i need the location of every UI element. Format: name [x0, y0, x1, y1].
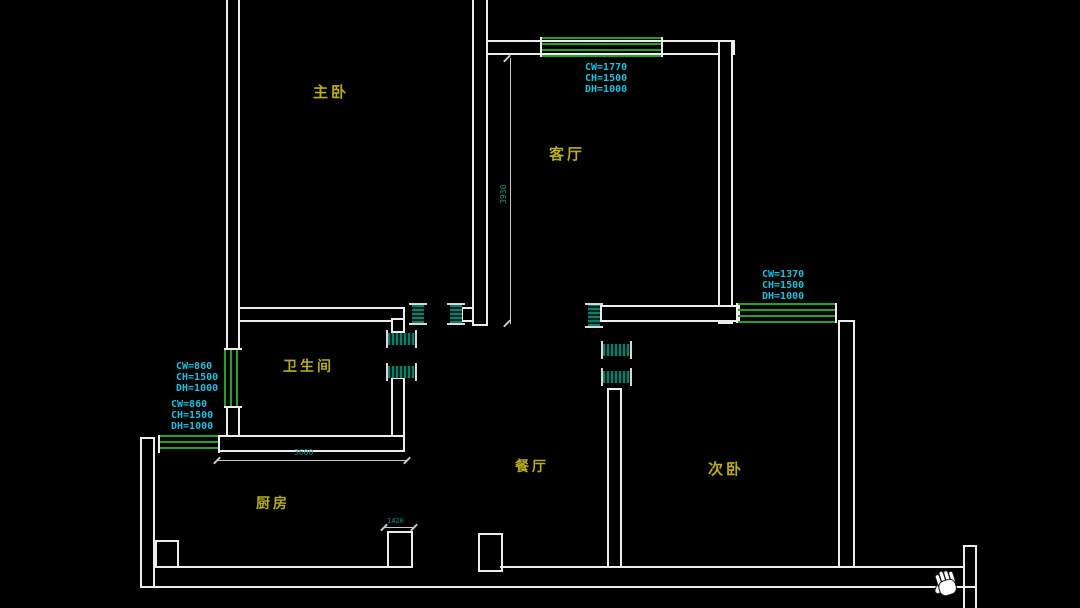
door-dimension-marker: [603, 371, 630, 383]
wall-bottom-inner-line-2: [500, 566, 963, 568]
wall-second-bedroom-right: [838, 320, 855, 568]
wall-kitchen-flue-column: [155, 540, 179, 568]
annotation-line: DH=1000: [171, 421, 213, 432]
dimension-text-kitchen-width: 3600: [294, 449, 313, 457]
wall-master-door-jamb: [461, 307, 474, 322]
annotation-line: DH=1000: [762, 291, 804, 302]
door-dimension-marker: [388, 366, 415, 378]
door-dimension-marker: [450, 305, 462, 323]
room-label-second-bedroom: 次卧: [708, 458, 744, 479]
wall-bathroom-right: [391, 377, 405, 437]
wall-master-bedroom-left: [226, 0, 240, 350]
dimension-line-kitchen-door: [385, 527, 413, 528]
window-annotation-living-room: CW=1770 CH=1500 DH=1000: [585, 62, 627, 95]
wall-second-bedroom-left: [607, 388, 622, 568]
annotation-line: CW=860: [176, 361, 218, 372]
dimension-line-living-room-depth: [510, 58, 511, 324]
wall-kitchen-entry-pillar: [387, 531, 413, 568]
door-dimension-marker: [603, 344, 630, 356]
wall-bottom-outer-line: [140, 586, 976, 588]
room-label-master-bedroom: 主卧: [313, 81, 349, 102]
pan-hand-icon: [930, 566, 964, 606]
annotation-line: CW=1770: [585, 62, 627, 73]
floor-plan-canvas[interactable]: 3930 3600 1420 主卧 客厅 卫生间 厨房 餐厅 次卧 CW=177…: [0, 0, 1080, 608]
door-dimension-marker: [388, 333, 415, 345]
window-living-room: [540, 37, 663, 57]
window-annotation-bathroom: CW=860 CH=1500 DH=1000: [176, 361, 218, 394]
wall-second-bedroom-top: [600, 305, 740, 322]
window-kitchen: [158, 435, 220, 453]
wall-right-edge-lower: [963, 545, 977, 608]
dimension-line-kitchen-width: [218, 460, 406, 461]
room-label-bathroom: 卫生间: [283, 356, 334, 376]
annotation-line: DH=1000: [585, 84, 627, 95]
window-annotation-kitchen: CW=860 CH=1500 DH=1000: [171, 399, 213, 432]
annotation-line: DH=1000: [176, 383, 218, 394]
room-label-living-room: 客厅: [549, 143, 585, 164]
wall-bathroom-left-lower: [226, 406, 240, 437]
annotation-line: CH=1500: [171, 410, 213, 421]
annotation-line: CH=1500: [176, 372, 218, 383]
annotation-line: CW=860: [171, 399, 213, 410]
room-label-dining-room: 餐厅: [515, 456, 549, 476]
wall-living-room-right: [718, 40, 733, 324]
wall-bottom-inner-line-1: [176, 566, 388, 568]
dimension-text-living-room-depth: 3930: [500, 185, 508, 204]
dimension-text-kitchen-door: 1420: [387, 517, 404, 525]
annotation-line: CH=1500: [585, 73, 627, 84]
window-second-bedroom: [736, 303, 837, 323]
wall-kitchen-left: [140, 437, 155, 588]
annotation-line: CW=1370: [762, 269, 804, 280]
door-dimension-marker: [412, 305, 424, 323]
wall-bathroom-right-top: [391, 318, 405, 333]
room-label-kitchen: 厨房: [256, 493, 290, 513]
window-annotation-second-bedroom: CW=1370 CH=1500 DH=1000: [762, 269, 804, 302]
wall-master-bedroom-bottom: [238, 307, 405, 322]
annotation-line: CH=1500: [762, 280, 804, 291]
door-dimension-marker: [588, 305, 600, 326]
window-bathroom: [224, 348, 242, 408]
